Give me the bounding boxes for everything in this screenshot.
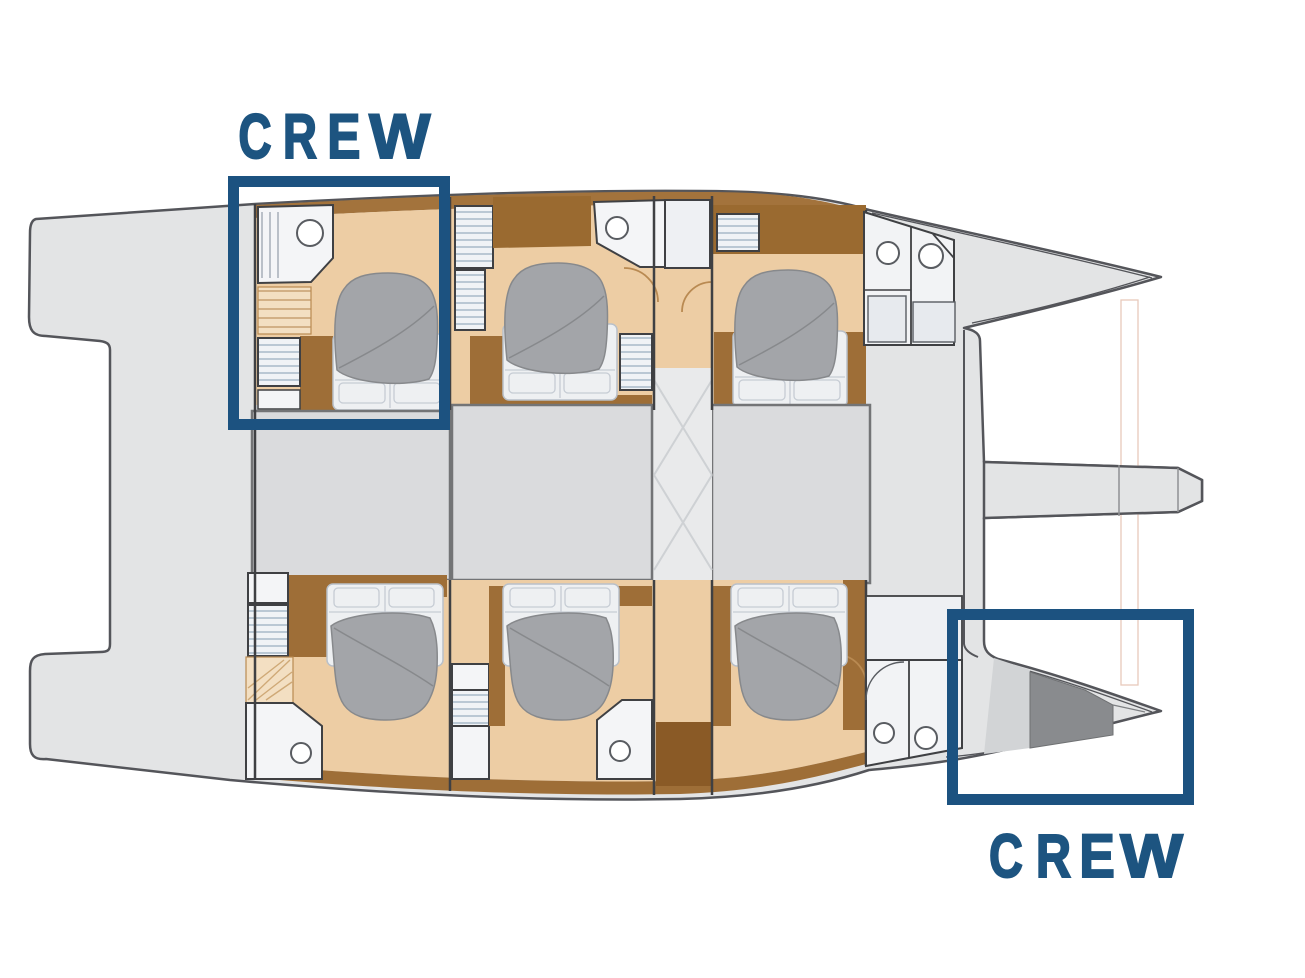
svg-text:W: W xyxy=(1120,822,1183,890)
svg-text:R: R xyxy=(1036,822,1071,890)
svg-text:C: C xyxy=(989,822,1023,890)
svg-text:E: E xyxy=(327,103,360,173)
svg-text:C: C xyxy=(238,101,271,172)
svg-text:E: E xyxy=(1079,823,1115,891)
svg-text:R: R xyxy=(283,101,317,171)
svg-text:W: W xyxy=(369,101,431,172)
